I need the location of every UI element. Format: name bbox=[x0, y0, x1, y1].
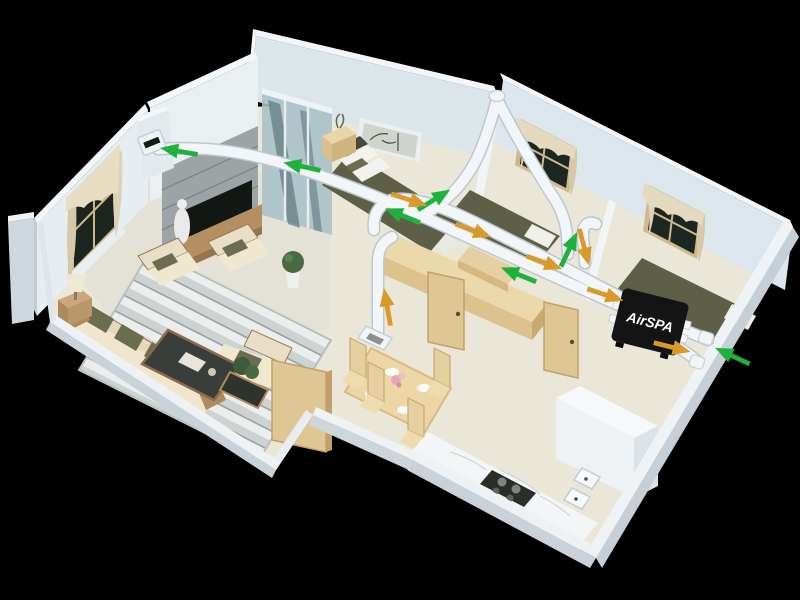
render-stage: AirSPA bbox=[0, 0, 800, 600]
hallway-door-1 bbox=[428, 272, 464, 350]
duct-wall-collar bbox=[489, 91, 505, 102]
floorplan-render: AirSPA bbox=[0, 0, 800, 600]
hallway-door-2 bbox=[544, 302, 578, 378]
entry-door bbox=[272, 360, 332, 452]
